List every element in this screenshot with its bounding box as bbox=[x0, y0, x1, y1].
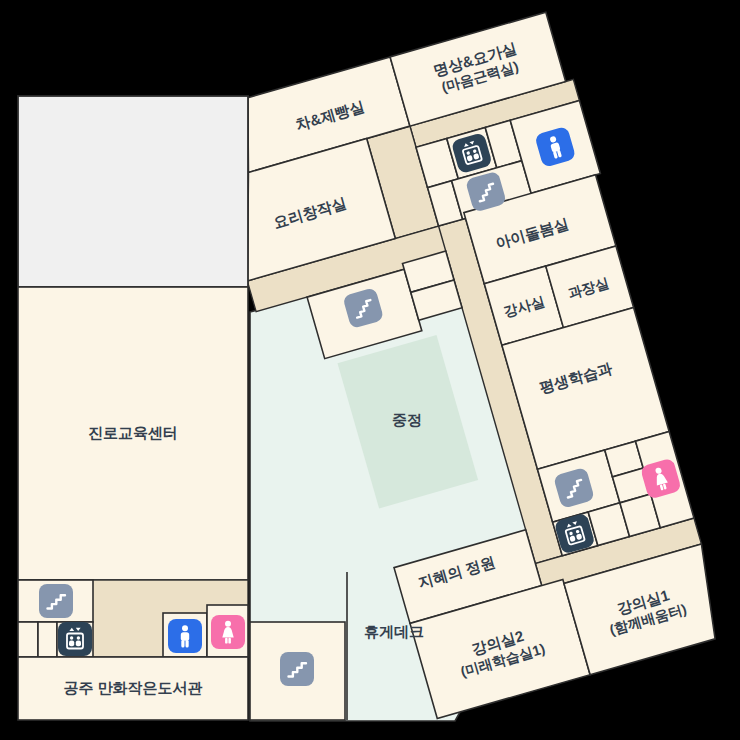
service-cell bbox=[38, 622, 57, 657]
mens-toilet-icon bbox=[168, 619, 202, 653]
unlabeled-area bbox=[18, 96, 248, 287]
elevator-icon bbox=[58, 622, 92, 656]
stairs-icon bbox=[280, 652, 314, 686]
courtyard-label: 중정 bbox=[392, 411, 422, 428]
stairs-icon bbox=[39, 584, 73, 618]
floor-plan-svg: 차&제빵실 명상&요가실 (마음근력실) 요리창작실 아이돌봄실 강사실 과장실… bbox=[0, 0, 740, 740]
room-comic-library-label: 공주 만화작은도서관 bbox=[63, 679, 202, 696]
room-career-center-label: 진로교육센터 bbox=[88, 424, 178, 441]
service-cell bbox=[18, 622, 38, 657]
womens-toilet-icon bbox=[211, 615, 245, 649]
floor-plan-canvas: 차&제빵실 명상&요가실 (마음근력실) 요리창작실 아이돌봄실 강사실 과장실… bbox=[0, 0, 740, 740]
rest-deck-label: 휴게데크 bbox=[364, 623, 424, 640]
